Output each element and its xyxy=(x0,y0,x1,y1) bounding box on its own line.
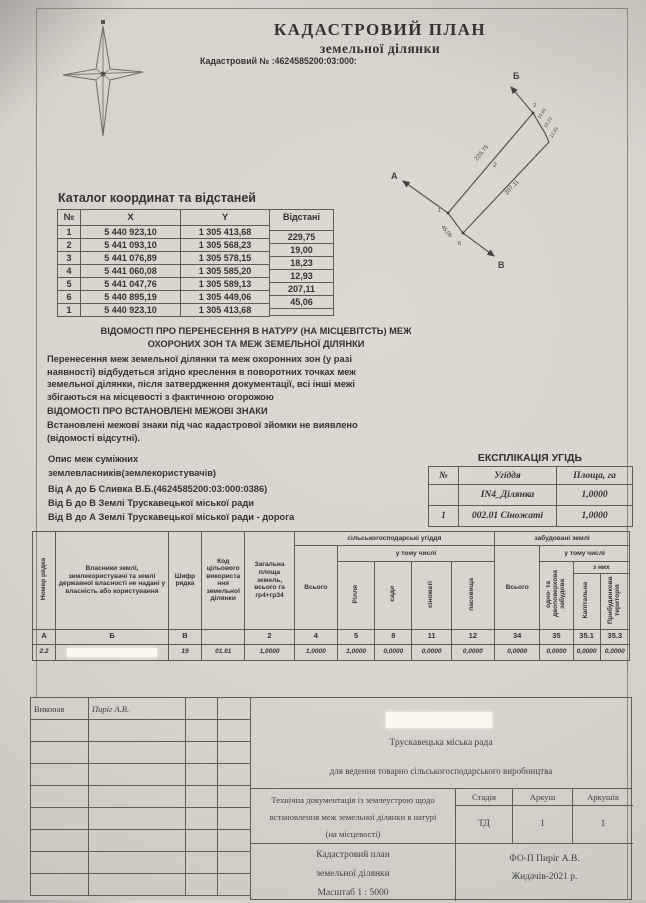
explication-row: 1002.01 Сіножаті1,0000 xyxy=(429,506,633,527)
table-cell: 1 305 578,15 xyxy=(181,252,270,265)
table-cell xyxy=(31,764,89,786)
table-cell xyxy=(186,852,218,874)
table-cell: 35.3 xyxy=(600,629,629,644)
table-cell: Власники землі, землекористувачі та земл… xyxy=(56,532,169,630)
table-cell: Рілля xyxy=(337,562,374,630)
table-cell xyxy=(31,742,89,764)
table-cell xyxy=(31,720,89,742)
doc-description: Технічна документація із землеустрою щод… xyxy=(251,789,456,844)
neighbors-title: Опис меж суміжних землевласників(землеко… xyxy=(48,452,216,480)
cadastral-number: Кадастровий № :4624585200:03:000: xyxy=(200,56,357,66)
sheet-label: Аркуш xyxy=(513,789,573,806)
table-cell: 4 xyxy=(294,629,337,644)
table-cell: 1,0000 xyxy=(557,506,633,527)
transfer-section-title: ВІДОМОСТІ ПРО ПЕРЕНЕСЕННЯ В НАТУРУ (НА М… xyxy=(55,325,457,351)
coords-table: № X Y 15 440 923,101 305 413,68 25 441 0… xyxy=(57,209,334,317)
author-cell: ФО-П Пиріг А.В. Жидачів-2021 р. xyxy=(456,844,633,901)
table-cell: сади xyxy=(375,562,412,630)
neighbor-line-2: Від Б до В Землі Трускавецької міської р… xyxy=(48,498,254,508)
table-cell: 5 xyxy=(58,278,81,291)
table-cell: 35 xyxy=(540,629,573,644)
place-year: Жидачів-2021 р. xyxy=(456,864,633,882)
explication-table: № Угіддя Площа, га IN4_Ділянка1,0000 100… xyxy=(428,466,633,527)
table-cell: 1 xyxy=(58,226,81,239)
label-V: В xyxy=(498,260,505,270)
table-cell xyxy=(218,830,251,852)
table-cell: 2 xyxy=(245,629,294,644)
table-cell: 5 441 060,08 xyxy=(81,265,181,278)
table-cell: 0,0000 xyxy=(600,644,629,660)
table-cell: 5 440 923,10 xyxy=(81,226,181,239)
stage-label: Стадія xyxy=(456,789,513,806)
table-cell: 0,0000 xyxy=(495,644,540,660)
table-cell: 2.2 xyxy=(33,644,56,660)
coord-row: 45 441 060,081 305 585,20 xyxy=(58,265,270,278)
redacted-name xyxy=(386,712,492,728)
table-cell: Код цільового використа ння земельної ді… xyxy=(202,532,245,630)
table-cell xyxy=(186,720,218,742)
table-cell xyxy=(186,698,218,720)
table-cell: 11 xyxy=(412,629,451,644)
table-cell: у тому числі xyxy=(540,546,630,562)
stage-value: ТД xyxy=(456,806,513,844)
sheets-label: Аркушів xyxy=(573,789,633,806)
table-cell: 1,0000 xyxy=(294,644,337,660)
table-cell: 5 440 923,10 xyxy=(81,304,181,317)
table-cell xyxy=(186,874,218,896)
table-cell xyxy=(89,764,186,786)
table-cell: 19 xyxy=(168,644,201,660)
table-cell: 1,0000 xyxy=(557,485,633,506)
table-cell: 0,0000 xyxy=(573,644,600,660)
ex-col-area: Площа, га xyxy=(557,467,633,485)
table-cell xyxy=(89,742,186,764)
table-cell: одно- та двоповерхова забудова xyxy=(540,562,573,630)
table-cell xyxy=(89,852,186,874)
table-cell: 34 xyxy=(495,629,540,644)
table-cell xyxy=(218,808,251,830)
table-cell: IN4_Ділянка xyxy=(459,485,557,506)
col-x: X xyxy=(81,210,181,226)
table-cell xyxy=(202,629,245,644)
table-cell: 0,0000 xyxy=(375,644,412,660)
table-cell xyxy=(89,720,186,742)
edge-18: 18,23 xyxy=(543,116,554,129)
table-cell: 1 305 449,06 xyxy=(181,291,270,304)
table-cell xyxy=(89,874,186,896)
col-n: № xyxy=(58,210,81,226)
table-cell: 1,0000 xyxy=(245,644,294,660)
table-cell: А xyxy=(33,629,56,644)
table-cell: 5 xyxy=(337,629,374,644)
land-form-table: Номер рядка Власники землі, землекористу… xyxy=(32,531,630,661)
scanned-cadastral-plan: { "page": { "title1": "КАДАСТРОВИЙ ПЛАН"… xyxy=(0,0,646,900)
table-cell xyxy=(31,808,89,830)
north-arrow-icon xyxy=(55,18,155,140)
coord-row: 35 441 076,891 305 578,15 xyxy=(58,252,270,265)
plan-name-cell: Кадастровий план земельної ділянки Масшт… xyxy=(251,844,456,901)
coord-row: 25 441 093,101 305 568,23 xyxy=(58,239,270,252)
scale-label: Масштаб 1 : 5000 xyxy=(251,884,455,903)
table-cell xyxy=(89,808,186,830)
table-cell: 8 xyxy=(375,629,412,644)
table-cell: 0,0000 xyxy=(451,644,494,660)
ex-col-land: Угіддя xyxy=(459,467,557,485)
table-cell: 1 305 585,20 xyxy=(181,265,270,278)
marks-section-body: Встановлені межові знаки під час кадастр… xyxy=(47,419,447,444)
table-cell: 6 xyxy=(58,291,81,304)
coords-title: Каталог координат та відстаней xyxy=(58,191,256,205)
table-cell: 1 305 568,23 xyxy=(181,239,270,252)
vertex-6: 6 xyxy=(458,241,461,247)
table-cell xyxy=(186,830,218,852)
table-cell xyxy=(31,874,89,896)
values-row: 2.2 1901.01 1,00001,0000 1,00000,0000 0,… xyxy=(33,644,630,660)
table-cell: 1 xyxy=(429,506,459,527)
label-A: А xyxy=(391,171,398,181)
explication-title: ЕКСПЛІКАЦІЯ УГІДЬ xyxy=(428,452,632,464)
table-cell: Всього xyxy=(294,546,337,630)
table-cell xyxy=(31,852,89,874)
table-cell: Всього xyxy=(495,546,540,630)
table-cell: 1 305 413,68 xyxy=(181,304,270,317)
table-cell: 3 xyxy=(58,252,81,265)
table-cell: Загальна площа земель, всього га гр4+гр3… xyxy=(245,532,294,630)
table-cell: 1 xyxy=(58,304,81,317)
table-cell xyxy=(89,786,186,808)
col-dist: Відстані xyxy=(270,210,333,231)
table-cell xyxy=(218,786,251,808)
table-cell: пасовища xyxy=(451,562,494,630)
table-cell: 35.1 xyxy=(573,629,600,644)
table-cell: сіножаті xyxy=(412,562,451,630)
table-cell xyxy=(31,786,89,808)
table-cell xyxy=(89,830,186,852)
coord-row: 15 440 923,101 305 413,68 xyxy=(58,226,270,239)
table-cell: Прибудинкова територія xyxy=(600,574,629,630)
column-letters-row: АБ В 24 58 1112 3435 35.135.3 xyxy=(33,629,630,644)
table-cell xyxy=(218,698,251,720)
table-cell xyxy=(218,852,251,874)
table-cell xyxy=(186,764,218,786)
table-cell xyxy=(218,742,251,764)
table-cell xyxy=(218,764,251,786)
coord-row: 65 440 895,191 305 449,06 xyxy=(58,291,270,304)
table-cell: 12 xyxy=(451,629,494,644)
edge-12: 12,93 xyxy=(549,126,560,139)
table-cell xyxy=(31,830,89,852)
table-cell xyxy=(429,485,459,506)
explication-row: IN4_Ділянка1,0000 xyxy=(429,485,633,506)
document-title: КАДАСТРОВИЙ ПЛАН xyxy=(180,20,580,40)
table-cell xyxy=(186,786,218,808)
edge-45: 45,06 xyxy=(439,224,452,238)
table-cell: у тому числі xyxy=(337,546,494,562)
table-cell: 5 440 895,19 xyxy=(81,291,181,304)
executor-label: Виконав xyxy=(31,698,89,720)
table-cell: 5 441 047,76 xyxy=(81,278,181,291)
table-cell: Шифр рядка xyxy=(168,532,201,630)
stamp-right-block: Трускавецька міська рада для ведення тов… xyxy=(250,697,632,900)
table-cell: Капітальна xyxy=(573,574,600,630)
table-cell: Б xyxy=(56,629,169,644)
land-purpose: для ведення товарно сільськогосподарсько… xyxy=(251,766,631,776)
distance-column: Відстані 229,75 19,00 18,23 12,93 207,11… xyxy=(270,209,334,316)
sheet-value: 1 xyxy=(513,806,573,844)
parcel-number: 2 xyxy=(492,162,497,169)
table-cell: В xyxy=(168,629,201,644)
table-cell xyxy=(218,874,251,896)
sheets-value: 1 xyxy=(573,806,633,844)
council-name: Трускавецька міська рада xyxy=(251,738,631,748)
vertex-1: 1 xyxy=(438,208,441,214)
built-group-header: забудовані землі xyxy=(495,532,630,546)
table-cell: 4 xyxy=(58,265,81,278)
label-B: Б xyxy=(513,71,520,81)
agri-group-header: сільськогосподарські угіддя xyxy=(294,532,494,546)
table-cell: 002.01 Сіножаті xyxy=(459,506,557,527)
parcel-outline xyxy=(448,113,549,233)
neighbor-line-3: Від В до А Землі Трускавецької міської р… xyxy=(48,512,294,522)
plan-name: Кадастровий план земельної ділянки xyxy=(251,844,455,884)
table-cell: 0,0000 xyxy=(540,644,573,660)
stamp-left-grid: Виконав Пиріг А.В. xyxy=(30,697,251,896)
table-cell xyxy=(186,742,218,764)
vertex-2: 2 xyxy=(533,103,536,109)
table-cell: 01.01 xyxy=(202,644,245,660)
col-y: Y xyxy=(181,210,270,226)
edge-19: 19,00 xyxy=(537,107,548,120)
executor-name: Пиріг А.В. xyxy=(89,698,186,720)
ex-col-n: № xyxy=(429,467,459,485)
table-cell xyxy=(186,808,218,830)
table-cell xyxy=(218,720,251,742)
marks-section-title: ВІДОМОСТІ ПРО ВСТАНОВЛЕНІ МЕЖОВІ ЗНАКИ xyxy=(47,406,268,416)
transfer-section-body: Перенесення меж земельної ділянки та меж… xyxy=(47,353,459,404)
author-name: ФО-П Пиріг А.В. xyxy=(456,844,633,864)
coord-row: 15 440 923,101 305 413,68 xyxy=(58,304,270,317)
coord-row: 55 441 047,761 305 589,13 xyxy=(58,278,270,291)
owner-cell: Трускавецька міська рада для ведення тов… xyxy=(251,698,631,789)
frame-top xyxy=(36,8,628,9)
table-cell: 1 305 589,13 xyxy=(181,278,270,291)
table-cell: 0,0000 xyxy=(412,644,451,660)
neighbor-line-1: Від А до Б Сливка В.Б.(4624585200:03:000… xyxy=(48,484,267,494)
table-cell: Номер рядка xyxy=(33,532,56,630)
table-cell: з них xyxy=(573,562,629,574)
edge-229: 229,75 xyxy=(474,144,491,162)
redacted-owner xyxy=(56,644,169,660)
table-cell: 5 441 076,89 xyxy=(81,252,181,265)
table-cell: 1 305 413,68 xyxy=(181,226,270,239)
table-cell: 1,0000 xyxy=(337,644,374,660)
parcel-sketch: А Б В 1 6 2 2 229,75 207,11 45,06 19,00 … xyxy=(385,55,645,275)
table-cell: 5 441 093,10 xyxy=(81,239,181,252)
table-cell: 2 xyxy=(58,239,81,252)
